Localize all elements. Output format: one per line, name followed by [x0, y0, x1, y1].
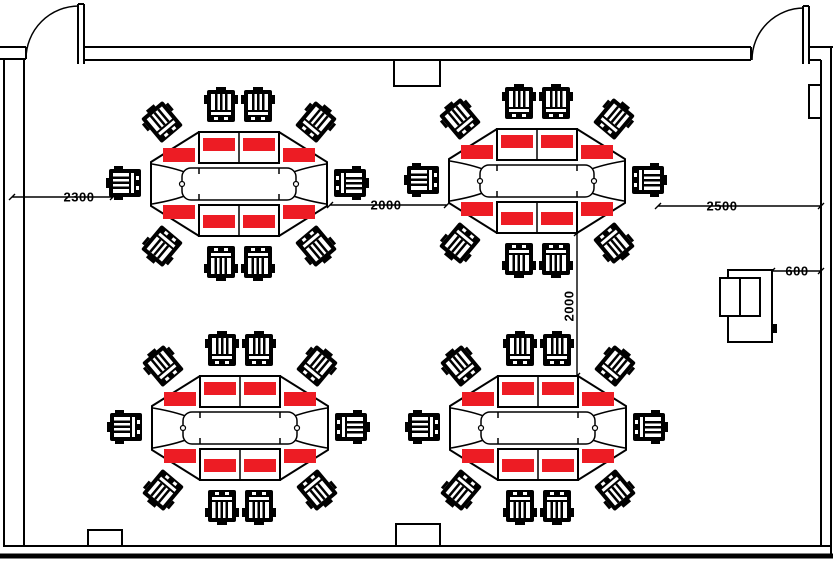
floor-plan-page: 2300 2000 2500 600 2000 [0, 0, 833, 561]
door-leaf [78, 4, 84, 64]
wall-top [84, 47, 751, 60]
door-swing-arc-icon [752, 8, 804, 60]
wall-top-right-stub [809, 47, 833, 60]
wall-left [4, 59, 24, 547]
dimension-label-aisle: 2000 [562, 291, 577, 322]
wall-top-left-stub [0, 47, 26, 59]
wall-column-bottom-center [396, 524, 440, 546]
dimension-lines [9, 194, 824, 379]
conference-table-3 [107, 331, 370, 525]
dimension-label-left: 2300 [64, 190, 95, 205]
wall-column-top [394, 60, 440, 86]
door-leaf [803, 6, 809, 64]
conference-table-1 [106, 87, 369, 281]
floor-plan: 2300 2000 2500 600 2000 [0, 0, 833, 561]
conference-table-2 [404, 84, 667, 278]
conference-table-4 [405, 331, 668, 525]
wall-right [821, 47, 831, 556]
dimension-label-between: 2000 [371, 198, 402, 213]
door-top-right [752, 6, 809, 64]
door-top-left [26, 4, 84, 64]
cabinet-handle [772, 324, 777, 333]
dimension-line-left [9, 194, 116, 200]
wall-column-bottom-left [88, 530, 122, 546]
dimension-label-right: 2500 [707, 199, 738, 214]
dimension-label-cabinet: 600 [785, 264, 808, 279]
door-swing-arc-icon [26, 6, 79, 59]
dimension-line-right [655, 203, 824, 209]
cabinet [720, 270, 777, 342]
wall-panel-right [809, 85, 821, 118]
walls [0, 47, 833, 556]
